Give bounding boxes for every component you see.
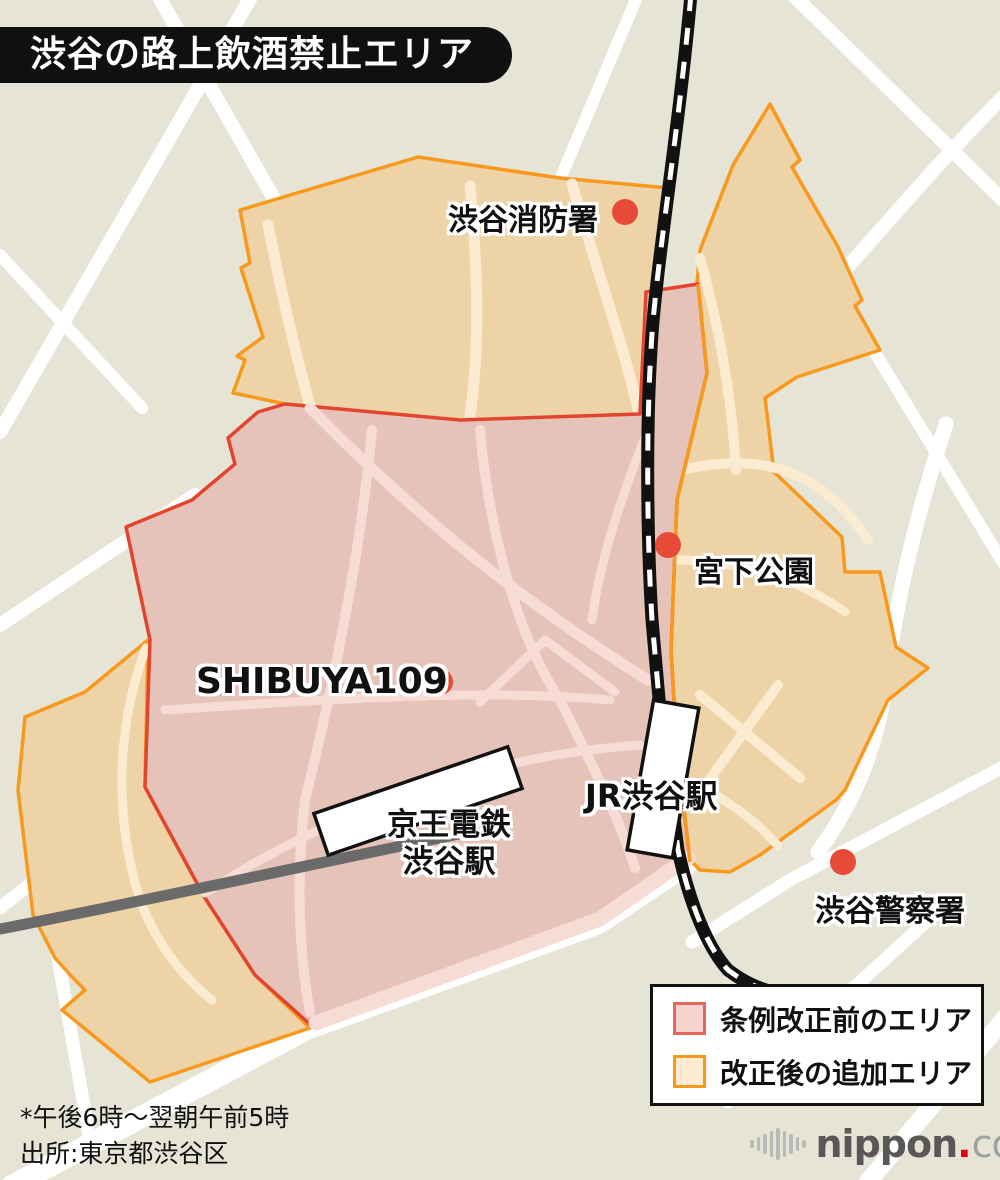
legend-swatch-before <box>673 1002 706 1035</box>
legend-swatch-added <box>673 1055 706 1088</box>
shibuya109-label: SHIBUYA109 <box>196 661 448 702</box>
miyashita-park-dot <box>655 532 681 558</box>
soundwave-icon <box>750 1128 806 1160</box>
legend-item-added: 改正後の追加エリア <box>673 1052 981 1092</box>
keio-station-label-line2: 渋谷駅 <box>368 844 530 881</box>
legend-label-added: 改正後の追加エリア <box>720 1052 972 1092</box>
logo-text-light: com <box>972 1122 1000 1166</box>
logo-dot: . <box>957 1122 971 1166</box>
map-canvas: 渋谷消防署 宮下公園 SHIBUYA109 JR渋谷駅 京王電鉄 渋谷駅 渋谷警… <box>0 0 1000 1180</box>
footnote-source: 出所:東京都渋谷区 <box>20 1136 289 1172</box>
police-station-dot <box>830 849 856 875</box>
page-title: 渋谷の路上飲酒禁止エリア <box>0 27 512 83</box>
fire-station-dot <box>612 199 638 225</box>
keio-station-label-line1: 京王電鉄 <box>368 807 530 844</box>
nippon-com-logo: nippon.com <box>750 1122 1000 1166</box>
police-station-label: 渋谷警察署 <box>815 886 965 930</box>
footnotes: *午後6時〜翌朝午前5時 出所:東京都渋谷区 <box>20 1100 289 1172</box>
logo-text-bold: nippon <box>816 1122 958 1166</box>
miyashita-park-label: 宮下公園 <box>694 547 814 591</box>
legend-label-before: 条例改正前のエリア <box>720 999 972 1039</box>
keio-station-label: 京王電鉄 渋谷駅 <box>368 807 530 881</box>
footnote-hours: *午後6時〜翌朝午前5時 <box>20 1100 289 1136</box>
logo-wordmark: nippon.com <box>816 1122 1000 1166</box>
jr-station-label: JR渋谷駅 <box>585 771 718 817</box>
fire-station-label: 渋谷消防署 <box>448 195 598 239</box>
legend-item-before: 条例改正前のエリア <box>673 999 981 1039</box>
legend-box: 条例改正前のエリア 改正後の追加エリア <box>650 984 984 1106</box>
